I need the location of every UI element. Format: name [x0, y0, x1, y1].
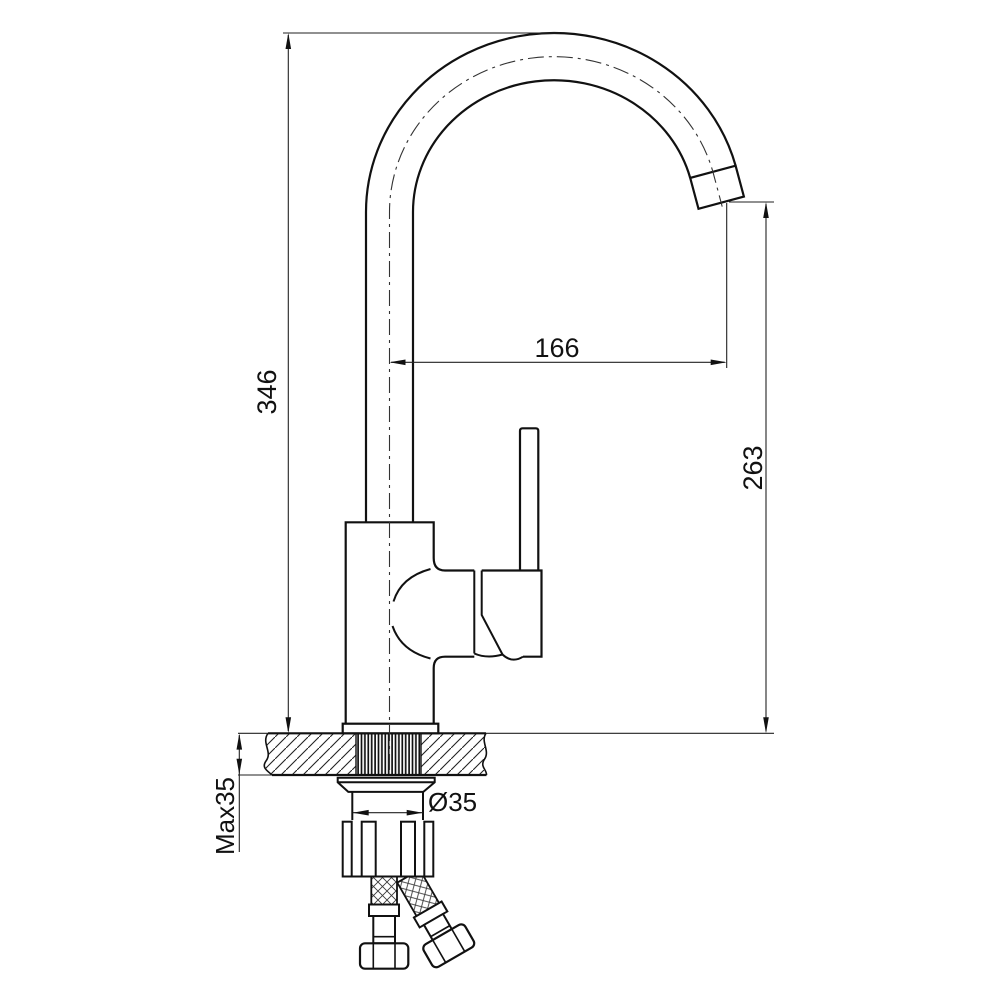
shank-below-nut — [352, 792, 423, 822]
label-outlet-height: 263 — [738, 445, 768, 490]
arrowhead-down — [763, 717, 769, 733]
faucet — [343, 33, 744, 733]
base-flange — [343, 724, 439, 734]
nut-mask — [341, 820, 435, 876]
dimension-total-height — [283, 33, 560, 733]
cartridge-joint-line-inner — [482, 571, 503, 655]
hose-crimp-ferrule — [369, 905, 399, 917]
body-right-lower — [434, 657, 475, 724]
arrowhead-left — [353, 810, 369, 816]
dimension-lines — [237, 33, 775, 852]
body-inner-curve-upper — [394, 569, 431, 602]
nut-prong — [343, 822, 352, 877]
arrowhead-down — [237, 759, 243, 775]
hose-hex-nut — [360, 943, 408, 968]
arrowhead-right — [711, 360, 727, 366]
mounting-hardware — [338, 778, 435, 822]
body-left-top-right — [346, 522, 475, 724]
threaded-shank-through-counter — [356, 733, 421, 775]
label-hole-diameter: Ø35 — [428, 787, 477, 817]
faucet-dimension-diagram: 166 346 263 Max35 Ø35 — [0, 0, 1000, 1000]
nut-prong — [401, 822, 415, 877]
handle-housing-bottom-lip — [474, 654, 523, 660]
countertop-hatch-left — [264, 733, 356, 775]
body-inner-curve-lower — [393, 626, 431, 659]
hose-braid — [371, 877, 397, 906]
supply-hoses — [360, 864, 476, 969]
dimension-counter-thickness — [237, 733, 273, 852]
arrowhead-down — [286, 717, 292, 733]
nut-prong — [424, 822, 433, 877]
spout-inner-wall — [413, 80, 690, 523]
spout-centerline — [389, 57, 722, 770]
arrowhead-right — [407, 810, 423, 816]
lock-nut — [338, 778, 435, 792]
hose-tube — [373, 916, 395, 943]
label-spout-reach: 166 — [534, 333, 579, 363]
dimension-hole-diameter — [353, 810, 423, 816]
arrowhead-up — [286, 33, 292, 49]
arrowhead-up — [763, 202, 769, 218]
arrowhead-up — [237, 734, 243, 750]
countertop-section — [264, 733, 486, 775]
technical-drawing-canvas: 166 346 263 Max35 Ø35 — [0, 0, 1000, 1000]
countertop-hatch-right — [421, 733, 487, 775]
label-total-height: 346 — [252, 369, 282, 414]
handle-housing — [482, 571, 542, 657]
dimension-outlet-height — [486, 202, 774, 733]
handle-lever — [520, 428, 538, 570]
spout-outer-wall — [366, 33, 736, 523]
nut-prong — [362, 822, 376, 877]
arrowhead-left — [390, 360, 406, 366]
label-counter-thickness: Max35 — [210, 777, 240, 855]
